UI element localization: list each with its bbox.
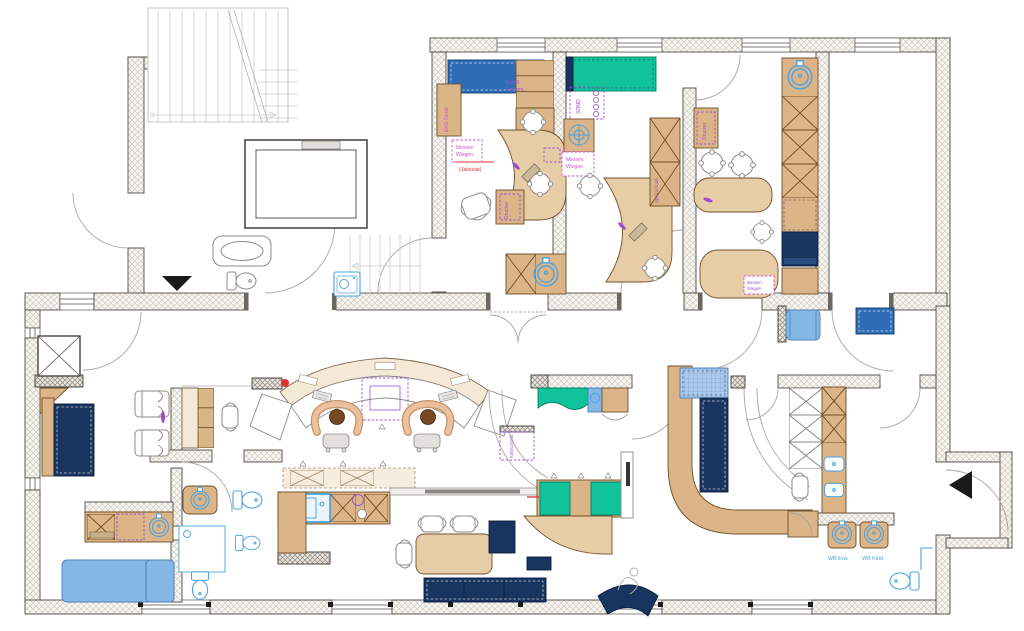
wall-segment [548, 293, 621, 310]
label-notfall-1: Notfall [505, 80, 519, 86]
bench [424, 578, 546, 602]
corner-counter [788, 511, 818, 537]
door-post [244, 293, 248, 310]
navy-cabinet-detail [784, 258, 816, 264]
door-post [828, 293, 832, 310]
wall-segment [171, 388, 182, 455]
baby-basin-icon [824, 457, 844, 471]
wall-segment [762, 293, 832, 310]
shower [179, 526, 225, 572]
wall-stub [500, 426, 534, 432]
window [497, 38, 545, 52]
window [617, 38, 662, 52]
x-cabinet [290, 470, 324, 486]
wall-segment [85, 502, 173, 512]
window [332, 600, 392, 614]
toilet-icon [235, 535, 260, 550]
open-shelf [789, 388, 823, 415]
label-spritzschrank: Spritzschrank [654, 177, 659, 203]
blue-bench [856, 308, 894, 334]
consult-desk-return [182, 388, 198, 448]
wall-segment [531, 375, 548, 388]
exam2-counter-edge [566, 57, 573, 91]
label-notfall-2: Rollcont. [505, 87, 524, 93]
wall-segment [936, 306, 950, 462]
x-cabinet [782, 96, 818, 130]
chair-icon [792, 473, 808, 501]
toilet-icon [890, 572, 919, 590]
messen-wiegen-box-3 [744, 276, 774, 294]
bathtub-icon [213, 236, 271, 266]
open-shelf [789, 415, 823, 442]
label-wb-erw: WB Erw. [828, 556, 849, 562]
wall-segment [662, 600, 752, 614]
label-jalousie: (Jalousie) [459, 167, 482, 173]
door-post [486, 293, 490, 310]
x-cabinet [822, 415, 846, 443]
x-cabinet [330, 494, 356, 522]
shaft [38, 336, 80, 376]
small-circle [358, 510, 367, 519]
elevator-door [302, 141, 340, 149]
wall-segment [731, 376, 745, 388]
wall-segment [94, 293, 248, 310]
wall-shelf [390, 488, 552, 495]
messen-wiegen-box-1 [452, 140, 482, 162]
door-post [698, 293, 702, 310]
wall-segment [25, 310, 40, 328]
wall-segment [128, 57, 144, 193]
x-cabinet [782, 130, 818, 164]
navy-unit [489, 521, 515, 553]
exam1-drawer-unit [516, 60, 554, 108]
toilet-icon [233, 491, 262, 509]
wall-segment [812, 600, 947, 614]
x-cabinet [364, 494, 388, 522]
label-kuehlschrank: Kühlschrank [509, 434, 514, 458]
open-shelf [789, 442, 823, 469]
shelf-dark-bar [626, 462, 630, 486]
wall-segment [778, 306, 786, 342]
chair-icon [450, 516, 478, 532]
ultrasound-probe-icon [569, 124, 589, 146]
counter-detail [375, 363, 395, 370]
elevator-car [256, 150, 356, 218]
changing-mat [680, 368, 728, 398]
door-post [617, 293, 621, 310]
window [25, 478, 40, 490]
wall-segment [278, 552, 330, 564]
window [752, 600, 812, 614]
label-wb-kind: WB Kind [862, 556, 883, 562]
wall-segment [244, 450, 282, 462]
floor-plan-canvas: EKG Gerät Notfall Rollcont. Messen Wiege… [0, 0, 1024, 631]
sink-box [588, 388, 602, 412]
label-messen-3b: Wiegen [747, 286, 762, 291]
teal-cabinet [540, 482, 570, 515]
waiting-chair-icon [135, 430, 169, 456]
counter-return [278, 492, 306, 553]
base-cabinet [782, 268, 818, 294]
exam3-desk [694, 178, 772, 212]
x-cabinet [650, 118, 680, 162]
pen-icon [161, 411, 165, 423]
dining-table [416, 534, 492, 574]
wall-segment [35, 375, 83, 387]
toilet-icon [191, 572, 208, 600]
x-cabinet [782, 164, 818, 198]
washing-machine-icon [334, 272, 360, 296]
wall-segment [920, 375, 936, 388]
label-ekg-geraet: EKG Gerät [444, 107, 450, 132]
wall-segment [936, 38, 950, 306]
label-messen-3a: Messen [747, 280, 762, 285]
consult-desk [198, 388, 214, 448]
wall-segment [210, 600, 332, 614]
label-drucker-2: Drucker [702, 122, 708, 140]
chair-icon [396, 540, 412, 568]
label-drucker-1: Drucker [504, 201, 510, 219]
wall-segment [1000, 452, 1012, 548]
wall-segment [25, 293, 60, 310]
label-messen-2b: Wiegen [566, 164, 583, 170]
kitchen-detail [90, 532, 114, 538]
label-messen-1a: Messen [456, 145, 474, 151]
exam2-counter [566, 57, 656, 91]
wall-segment [946, 452, 1008, 462]
navy-counter [700, 398, 728, 492]
door-post [889, 293, 893, 310]
couch [62, 560, 174, 602]
wall-segment [548, 375, 632, 388]
wall-segment [432, 52, 446, 238]
baby-basin-icon [825, 483, 844, 496]
x-cabinet [822, 387, 846, 415]
window [60, 293, 94, 310]
armchair [786, 310, 820, 340]
office-chair-icon [222, 403, 238, 431]
window [742, 38, 790, 52]
staff-kitchen [85, 512, 173, 542]
x-cabinet [340, 470, 374, 486]
wall-segment [946, 538, 1008, 548]
x-cabinet [506, 254, 536, 294]
wardrobe-cabinet [54, 404, 94, 476]
window [855, 38, 900, 52]
chair-icon [418, 516, 446, 532]
side-cabinet [602, 388, 628, 412]
label-messen-2a: Messen [566, 157, 584, 163]
wardrobe-side [42, 398, 54, 476]
wall-segment [778, 375, 880, 388]
teal-cabinet [591, 482, 622, 515]
wall-segment [25, 490, 40, 602]
label-sono: SONO [576, 99, 582, 114]
toilet-icon [227, 272, 256, 290]
navy-unit-small [527, 557, 551, 570]
floor-plan-drawing: EKG Gerät Notfall Rollcont. Messen Wiege… [0, 0, 1024, 631]
wall-segment [252, 378, 282, 389]
label-messen-1b: Wiegen [456, 152, 473, 158]
